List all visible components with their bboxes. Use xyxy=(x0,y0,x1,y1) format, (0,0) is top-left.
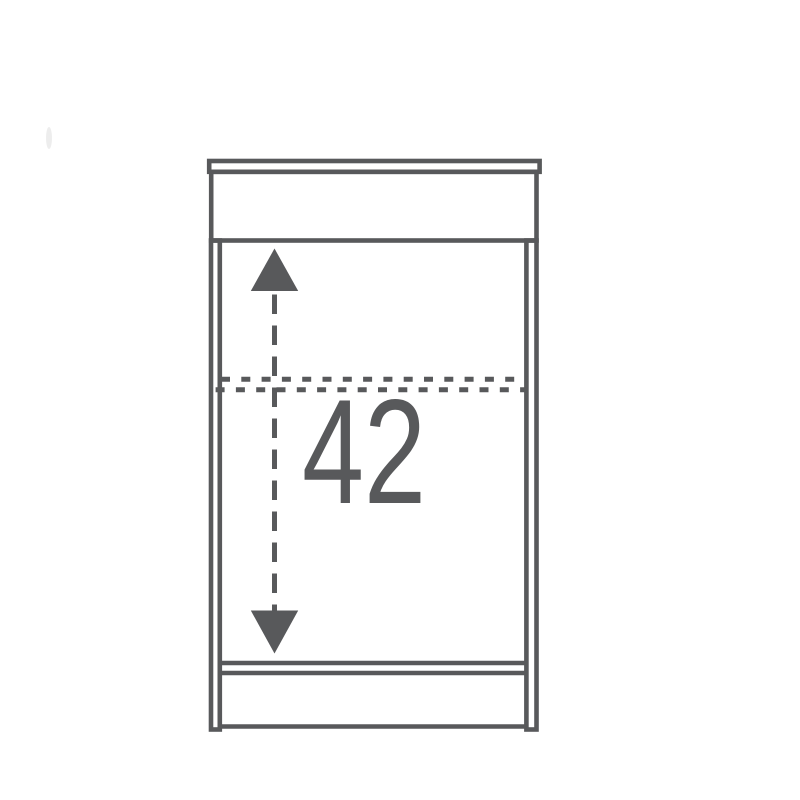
svg-text:42: 42 xyxy=(302,368,426,535)
